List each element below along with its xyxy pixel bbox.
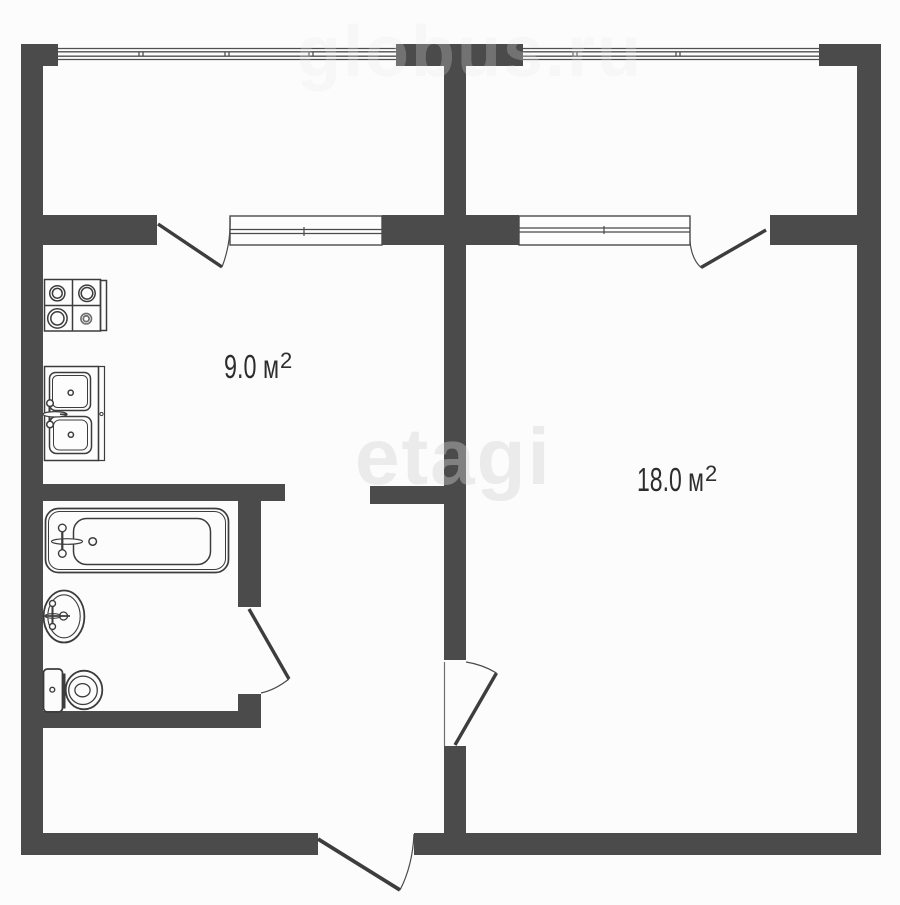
- svg-text:etagi: etagi: [355, 412, 552, 501]
- svg-text:18.0 м: 18.0 м: [637, 461, 704, 498]
- svg-text:globus.ru: globus.ru: [297, 12, 643, 92]
- svg-text:2: 2: [705, 461, 717, 486]
- svg-text:9.0 м: 9.0 м: [224, 348, 279, 385]
- svg-text:2: 2: [280, 348, 292, 373]
